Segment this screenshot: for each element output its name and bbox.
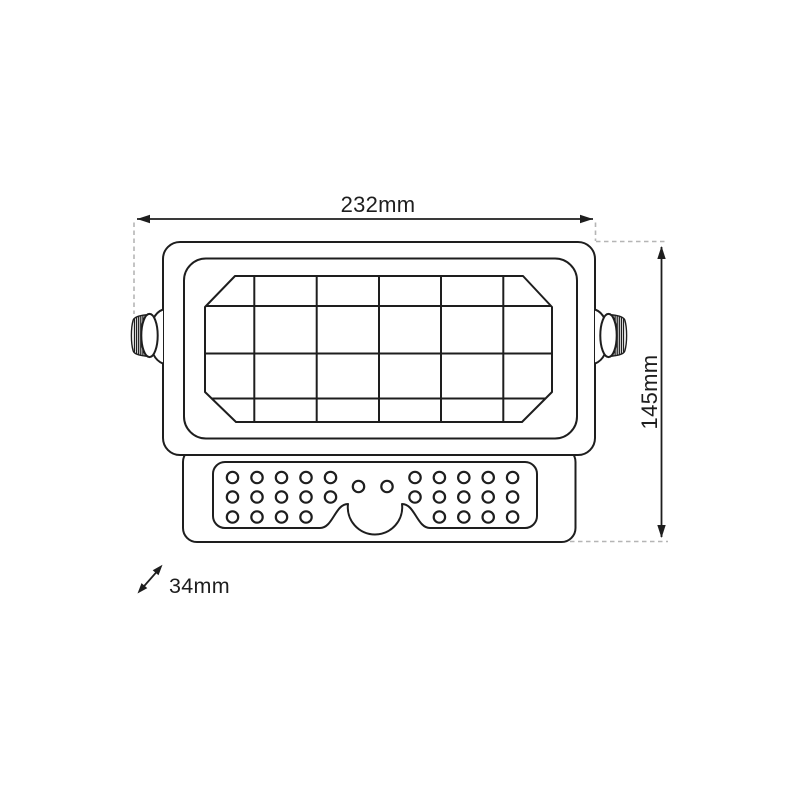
knob-right-cap	[600, 314, 616, 357]
led-dot	[434, 491, 445, 502]
led-dot	[483, 491, 494, 502]
led-dot	[251, 491, 262, 502]
led-dot	[458, 511, 469, 522]
led-dot	[483, 472, 494, 483]
width-label: 232mm	[341, 192, 416, 217]
led-dot	[325, 491, 336, 502]
dimension-width: 232mm	[137, 192, 593, 223]
led-dot	[353, 481, 364, 492]
led-dot	[227, 511, 238, 522]
led-dot	[325, 472, 336, 483]
arrowhead-left-icon	[137, 215, 150, 223]
led-dot	[507, 511, 518, 522]
led-dot	[227, 472, 238, 483]
arrowhead-right-icon	[580, 215, 593, 223]
led-dot	[251, 511, 262, 522]
led-dot	[276, 511, 287, 522]
led-dot	[483, 511, 494, 522]
led-dot	[409, 491, 420, 502]
knob-right	[595, 310, 627, 364]
led-dot	[381, 481, 392, 492]
led-dot	[458, 491, 469, 502]
led-dot	[434, 511, 445, 522]
dimension-depth: 34mm	[138, 565, 230, 598]
led-dot	[300, 511, 311, 522]
led-dot	[276, 491, 287, 502]
led-dot	[276, 472, 287, 483]
floodlight-diagram: 232mm 145mm 34mm	[0, 0, 800, 800]
dimension-drawing-canvas: 232mm 145mm 34mm	[0, 0, 800, 800]
led-panel	[213, 462, 537, 534]
depth-label: 34mm	[169, 574, 230, 598]
led-dot	[409, 472, 420, 483]
led-dot	[300, 472, 311, 483]
led-dot	[434, 472, 445, 483]
knob-left	[131, 310, 163, 364]
led-dot	[251, 472, 262, 483]
led-dot	[507, 472, 518, 483]
led-dot	[458, 472, 469, 483]
dimension-height: 145mm	[637, 246, 666, 538]
height-label: 145mm	[637, 355, 662, 430]
solar-panel	[205, 276, 552, 422]
arrowhead-down-icon	[657, 525, 665, 538]
knob-left-cap	[141, 314, 157, 357]
led-dot	[300, 491, 311, 502]
led-dot	[507, 491, 518, 502]
led-dot	[227, 491, 238, 502]
arrowhead-up-icon	[657, 246, 665, 259]
